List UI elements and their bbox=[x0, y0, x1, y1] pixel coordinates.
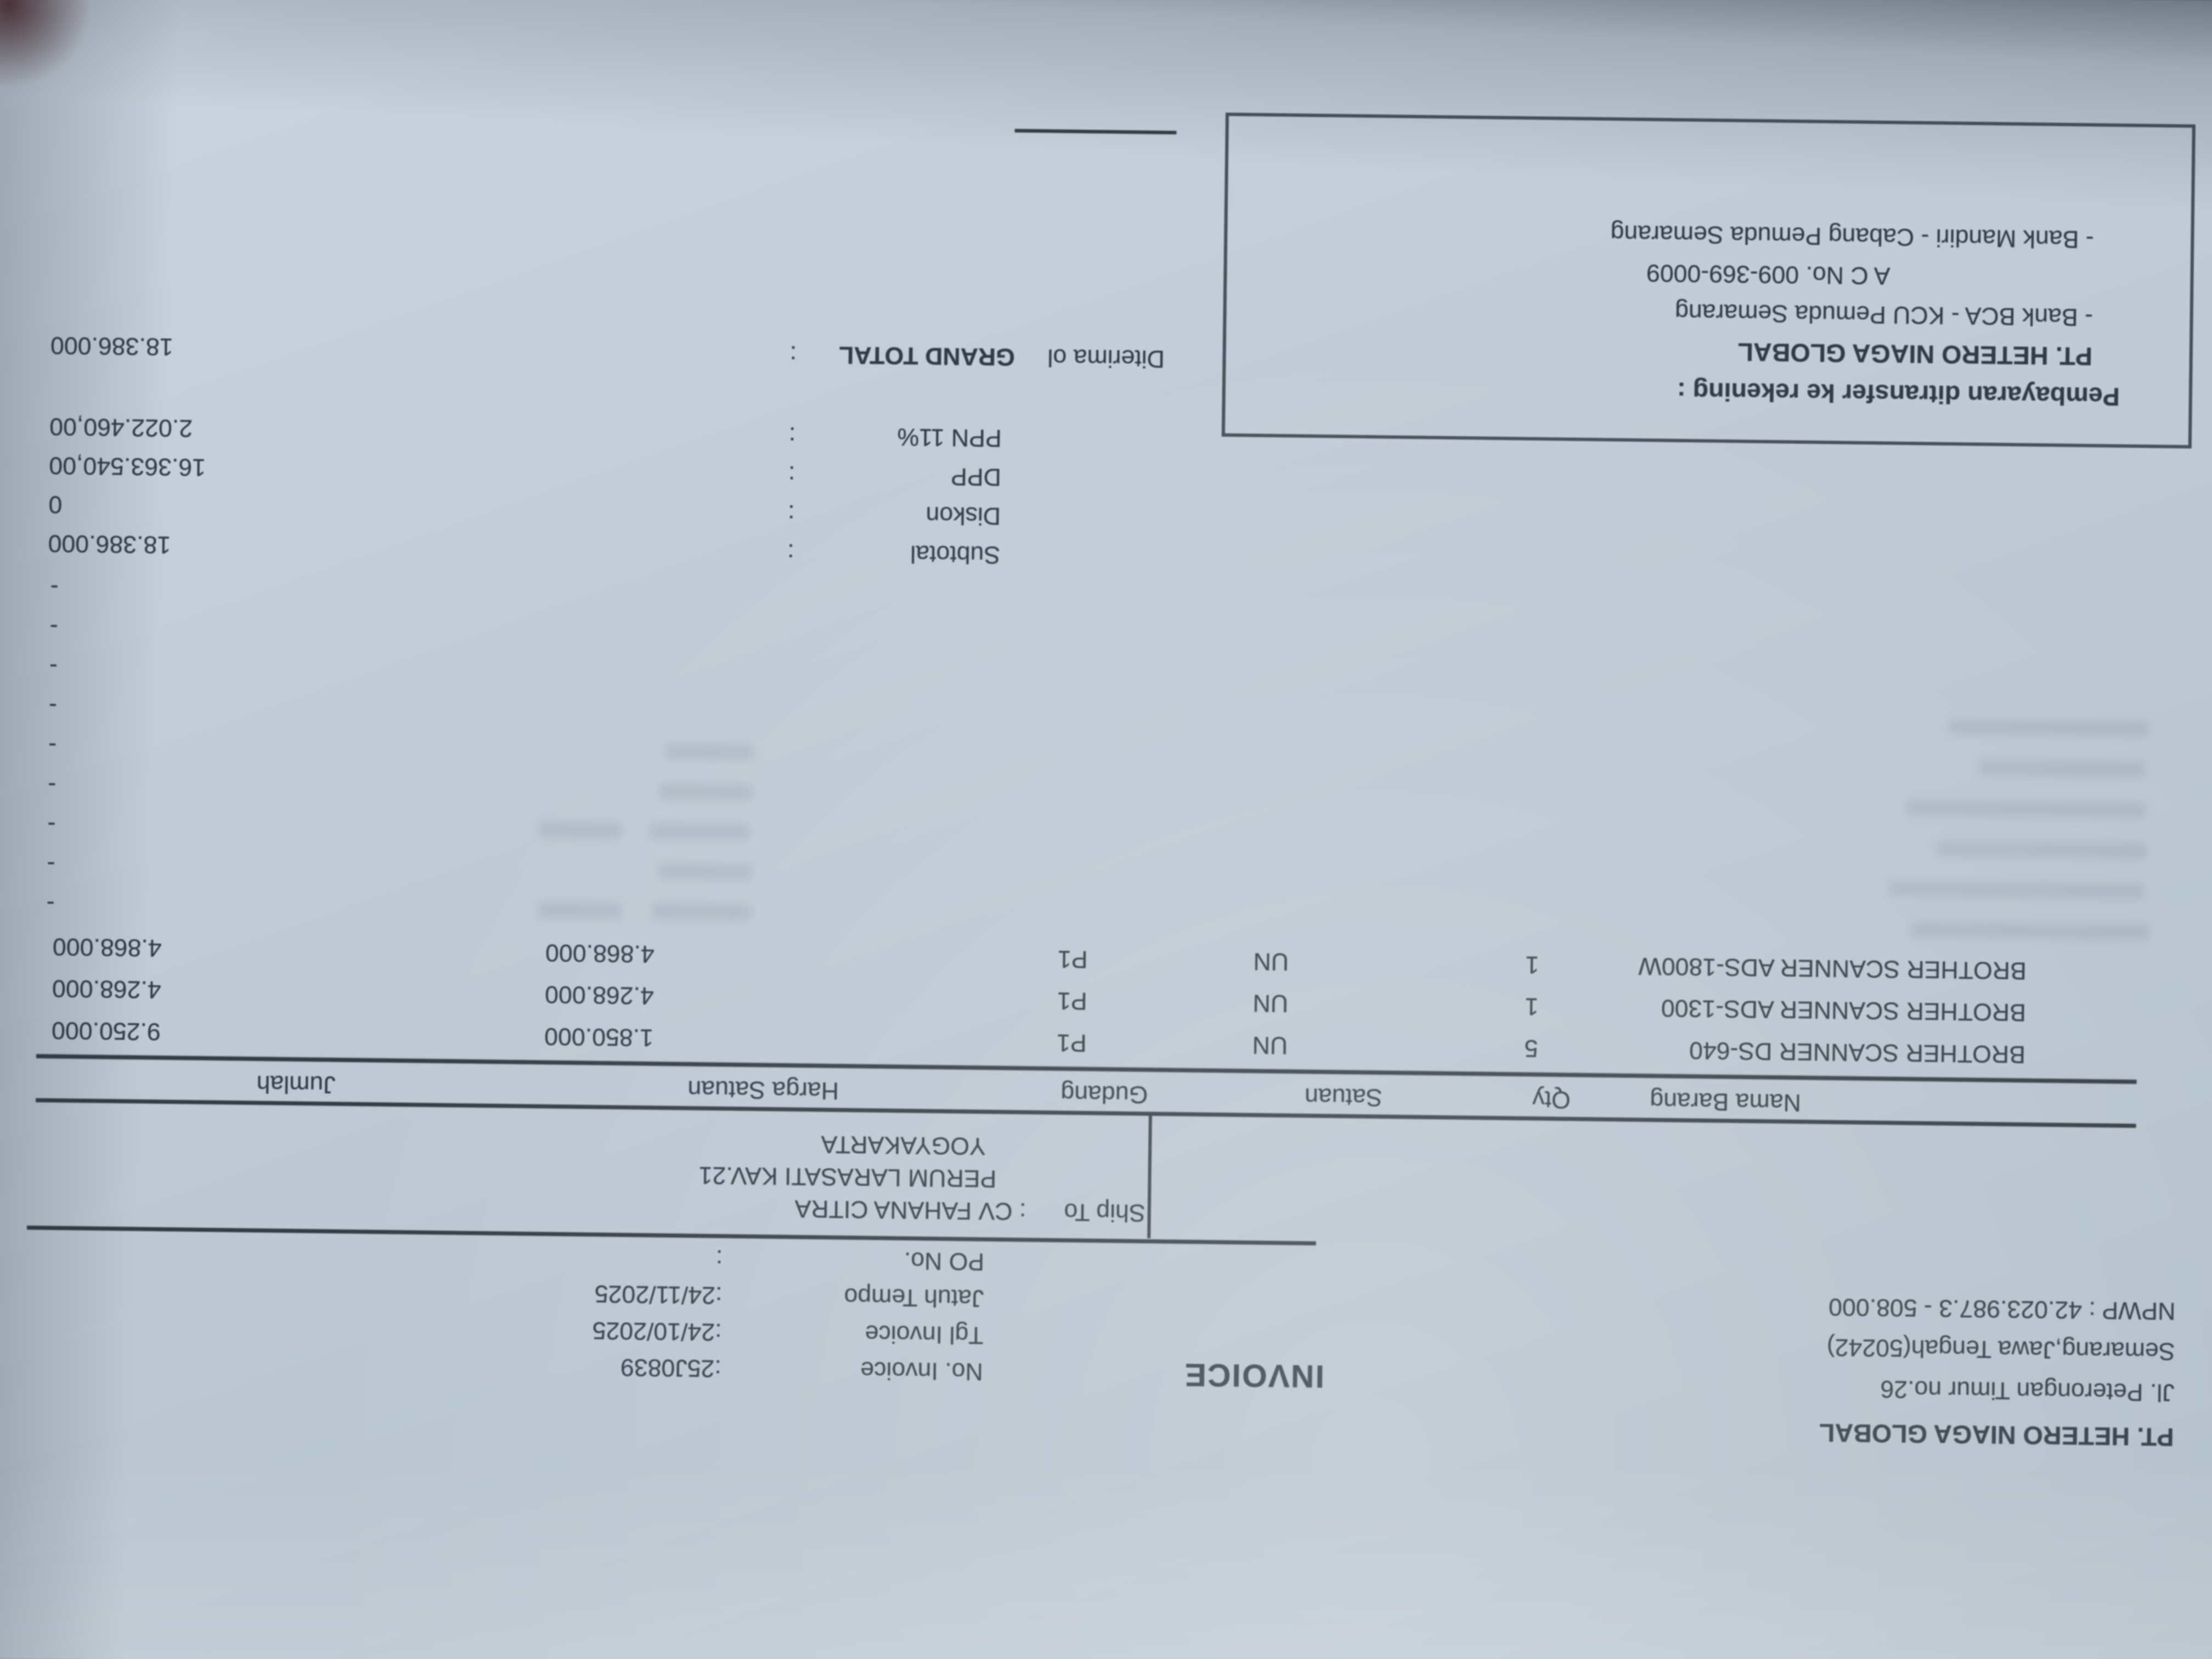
bleed-through-mark bbox=[538, 901, 622, 919]
column-header: Qty bbox=[1532, 1085, 1571, 1114]
payment-bank-line: - Bank BCA - KCU Pemuda Semarang bbox=[1675, 297, 2093, 331]
meta-value: : bbox=[715, 1244, 723, 1272]
ship-to-label: Ship To bbox=[1064, 1197, 1145, 1226]
ship-to-city: YOGYAKARTA bbox=[821, 1130, 986, 1160]
column-header: Nama Barang bbox=[1650, 1086, 1801, 1116]
bleed-through-mark bbox=[652, 903, 752, 921]
invoice-paper: PT. HETERO NIAGA GLOBAL Jl. Peterongan T… bbox=[0, 0, 2212, 1659]
total-value: 2.022.460,00 bbox=[49, 412, 441, 445]
bleed-through-mark bbox=[1906, 799, 2146, 819]
photo-viewport: PT. HETERO NIAGA GLOBAL Jl. Peterongan T… bbox=[0, 0, 2212, 1659]
ship-to-address: PERUM LARASATI KAV.21 bbox=[698, 1160, 996, 1192]
item-qty: 1 bbox=[1525, 992, 1614, 1021]
grand-total-colon: : bbox=[789, 340, 797, 368]
bleed-through-mark bbox=[650, 823, 750, 841]
total-colon: : bbox=[789, 421, 796, 449]
column-header: Harga Satuan bbox=[687, 1075, 839, 1105]
empty-row-dash: - bbox=[46, 890, 111, 919]
payment-bank-line: - Bank Mandiri - Cabang Pemuda Semarang bbox=[1610, 219, 2094, 253]
total-label: PPN 11% bbox=[897, 422, 1002, 452]
total-colon: : bbox=[787, 538, 794, 567]
item-unit-price: 4.868.000 bbox=[545, 938, 880, 970]
company-address-line2: Semarang,Jawa Tengah(50242) bbox=[1826, 1333, 2175, 1365]
meta-label: PO No. bbox=[904, 1246, 984, 1275]
invoice-photo: PT. HETERO NIAGA GLOBAL Jl. Peterongan T… bbox=[0, 0, 2212, 1659]
total-colon: : bbox=[788, 499, 795, 527]
bleed-through-mark bbox=[659, 783, 754, 801]
payment-title: Pembayaran ditransfer ke rekening : bbox=[1677, 376, 2120, 411]
empty-row-dash: - bbox=[49, 692, 114, 721]
item-warehouse: P1 bbox=[1057, 1028, 1087, 1057]
item-unit: UN bbox=[1252, 989, 1288, 1017]
item-unit: UN bbox=[1252, 1030, 1288, 1059]
bleed-through-mark bbox=[1979, 759, 2146, 778]
item-qty: 1 bbox=[1525, 950, 1615, 979]
item-amount: 4.268.000 bbox=[52, 974, 442, 1007]
item-warehouse: P1 bbox=[1057, 986, 1087, 1015]
empty-row-dash: - bbox=[47, 850, 112, 879]
payment-bank-line: A C No. 009-369-0009 bbox=[1646, 258, 1891, 290]
total-colon: : bbox=[788, 460, 795, 488]
meta-value: :24/10/2025 bbox=[592, 1316, 722, 1345]
item-amount: 4.868.000 bbox=[53, 932, 443, 965]
meta-value: :24/11/2025 bbox=[594, 1279, 722, 1308]
meta-label: Tgl Invoice bbox=[865, 1319, 984, 1348]
shipto-divider-line bbox=[1147, 1114, 1152, 1238]
total-value: 16.363.540,00 bbox=[49, 451, 440, 484]
item-qty: 5 bbox=[1524, 1034, 1613, 1063]
bleed-through-mark bbox=[1949, 718, 2149, 737]
total-label: Subtotal bbox=[910, 539, 1001, 568]
empty-row-dash: - bbox=[50, 573, 115, 602]
bleed-through-mark bbox=[1936, 840, 2148, 860]
payment-account-name: PT. HETERO NIAGA GLOBAL bbox=[1737, 337, 2092, 371]
meta-label: No. Invoice bbox=[860, 1356, 983, 1385]
grand-total-value: 18.386.000 bbox=[50, 331, 442, 364]
total-label: DPP bbox=[951, 462, 1001, 490]
empty-row-dash: - bbox=[47, 811, 112, 840]
signature-line bbox=[1015, 129, 1176, 134]
column-header: Jumlah bbox=[256, 1069, 336, 1098]
empty-row-dash: - bbox=[49, 652, 115, 681]
total-label: Diskon bbox=[926, 501, 1001, 530]
bleed-through-mark bbox=[538, 821, 622, 839]
item-unit-price: 4.268.000 bbox=[545, 980, 879, 1012]
company-npwp: NPWP : 42.023.987.3 - 508.000 bbox=[1829, 1293, 2176, 1325]
company-name: PT. HETERO NIAGA GLOBAL bbox=[1819, 1418, 2174, 1452]
item-name: BROTHER SCANNER ADS-1800W bbox=[1638, 951, 2027, 984]
grand-total-label: GRAND TOTAL bbox=[839, 340, 1015, 370]
item-unit-price: 1.850.000 bbox=[544, 1022, 879, 1054]
empty-row-dash: - bbox=[48, 732, 114, 761]
item-name: BROTHER SCANNER DS-640 bbox=[1689, 1036, 2026, 1068]
header-divider-line bbox=[27, 1226, 1316, 1245]
ship-to-name: : CV FAHANA CITRA bbox=[794, 1194, 1026, 1225]
total-value: 0 bbox=[48, 490, 439, 523]
company-address-line1: Jl. Peterongan Timur no.26 bbox=[1880, 1374, 2175, 1406]
column-header: Gudang bbox=[1060, 1079, 1148, 1108]
meta-label: Jatuh Tempo bbox=[844, 1282, 984, 1312]
bleed-through-mark bbox=[665, 743, 754, 760]
bleed-through-mark bbox=[1910, 921, 2149, 941]
item-name: BROTHER SCANNER ADS-1300 bbox=[1661, 994, 2027, 1026]
item-warehouse: P1 bbox=[1058, 944, 1088, 973]
empty-row-dash: - bbox=[48, 771, 113, 800]
page-title: INVOICE bbox=[1183, 1356, 1324, 1395]
bleed-through-mark bbox=[658, 863, 753, 881]
total-value: 18.386.000 bbox=[48, 529, 439, 562]
empty-row-dash: - bbox=[50, 613, 115, 642]
item-amount: 9.250.000 bbox=[52, 1015, 442, 1048]
column-header: Satuan bbox=[1305, 1082, 1383, 1111]
meta-value: :25J0839 bbox=[620, 1353, 721, 1383]
item-unit: UN bbox=[1253, 947, 1289, 975]
bleed-through-mark bbox=[1888, 881, 2145, 900]
received-by-label: Diterima ol bbox=[1047, 343, 1165, 373]
